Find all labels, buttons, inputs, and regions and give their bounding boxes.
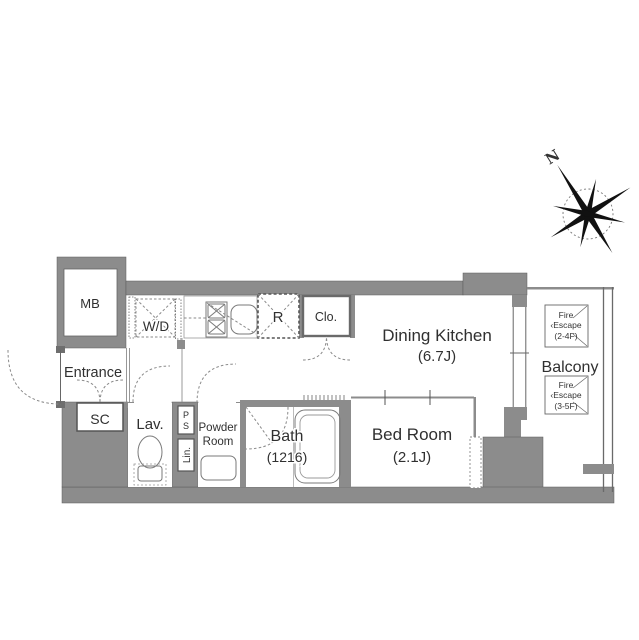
compass: N — [510, 123, 639, 276]
label-wd: W/D — [143, 319, 169, 334]
step-wall-1 — [504, 407, 527, 420]
powder-door-arc — [197, 364, 236, 403]
powder-bath-wall — [240, 400, 246, 487]
fire-escape-lower-l2: ‹Escape — [550, 390, 581, 400]
balcony-window — [512, 307, 527, 407]
front-door-arc — [8, 350, 61, 404]
floor-plan-page: Fire ‹Escape (2-4F) Fire ‹Escape (3-5F) … — [0, 0, 639, 640]
label-lav: Lav. — [136, 416, 163, 433]
label-sc: SC — [90, 411, 109, 427]
sc-door-arc-right — [100, 380, 123, 403]
step-wall-2 — [504, 420, 521, 437]
label-entrance: Entrance — [64, 365, 122, 381]
fire-escape-lower-l3: (3-5F) — [554, 401, 577, 411]
fire-escape-upper-l3: (2-4F) — [554, 331, 577, 341]
fire-escape-upper: Fire ‹Escape (2-4F) — [545, 305, 588, 347]
bath-floor — [246, 407, 339, 487]
closet-door-arc-right — [327, 336, 351, 360]
closet-door-arc-left — [303, 336, 327, 360]
bottom-wall — [62, 487, 614, 503]
label-lin: Lin. — [182, 447, 193, 463]
balcony-partition — [583, 464, 614, 474]
sc-door-arc-left — [77, 380, 100, 403]
label-closet: Clo. — [315, 310, 337, 324]
bath-top-wall — [246, 400, 351, 407]
compass-north-label: N — [542, 146, 563, 169]
label-bed-room: Bed Room — [372, 425, 452, 444]
bath-bed-wall — [339, 400, 351, 487]
label-ps-p: P — [183, 410, 189, 420]
hall-corner-post — [177, 340, 185, 349]
fire-escape-lower-l1: Fire — [559, 380, 574, 390]
bed-right-wall — [474, 397, 477, 437]
label-powder-1: Powder — [199, 422, 238, 434]
window-top-stub — [512, 295, 527, 307]
fire-escape-upper-l2: ‹Escape — [550, 320, 581, 330]
floor-plan-drawing: Fire ‹Escape (2-4F) Fire ‹Escape (3-5F) … — [0, 0, 639, 640]
label-bed-room-size: (2.1J) — [393, 449, 431, 466]
balcony-top-edge — [527, 287, 614, 290]
fire-escape-lower: Fire ‹Escape (3-5F) — [545, 376, 588, 414]
label-bath-size: (1216) — [267, 449, 307, 465]
label-bath: Bath — [271, 428, 304, 445]
label-mb: MB — [80, 296, 100, 311]
bath-wall-ticks — [304, 395, 344, 400]
label-balcony: Balcony — [542, 359, 599, 376]
fire-escape-upper-l1: Fire — [559, 310, 574, 320]
compass-star — [520, 138, 639, 276]
wd-jamb-left — [129, 297, 135, 338]
label-powder-2: Room — [203, 436, 234, 448]
label-fridge: R — [273, 309, 284, 326]
top-wall-right — [463, 273, 527, 295]
label-dining-kitchen-size: (6.7J) — [418, 348, 456, 365]
lav-door-arc — [133, 366, 170, 402]
label-dining-kitchen: Dining Kitchen — [382, 326, 492, 345]
label-ps-s: S — [183, 421, 189, 431]
wd-jamb-right — [176, 299, 182, 339]
step-wall-3 — [483, 437, 543, 488]
bed-side-shutter — [470, 437, 481, 488]
top-wall — [126, 281, 463, 295]
